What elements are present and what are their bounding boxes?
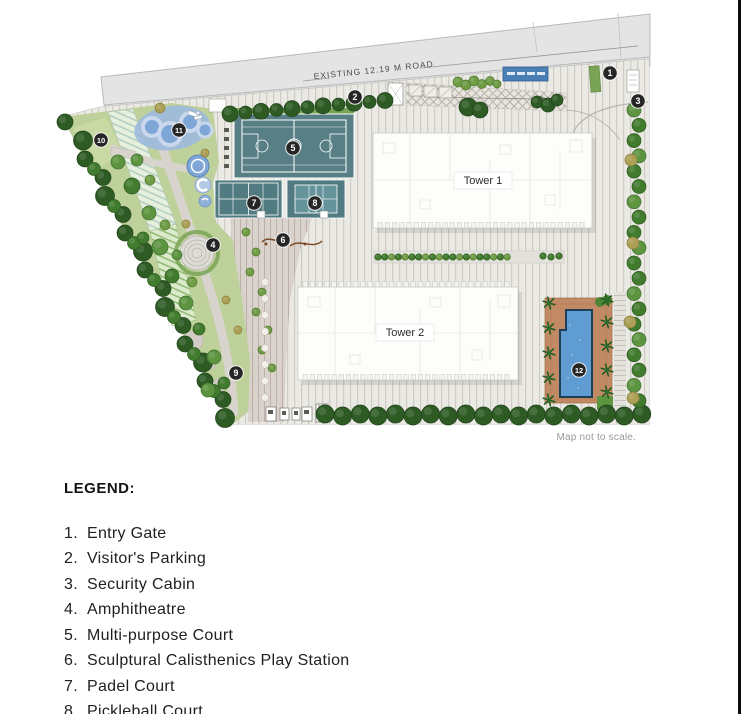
tree bbox=[490, 254, 496, 260]
balcony-tick bbox=[317, 375, 322, 381]
tree bbox=[627, 287, 641, 301]
tree bbox=[386, 405, 404, 423]
brochure-page: EXISTING 12.19 M ROAD bbox=[0, 0, 741, 714]
tree bbox=[632, 180, 646, 194]
map-marker-1: 1 bbox=[603, 66, 618, 81]
tree bbox=[627, 392, 639, 404]
tree bbox=[111, 155, 125, 169]
tree bbox=[222, 106, 238, 122]
tree bbox=[334, 407, 352, 425]
svg-text:10: 10 bbox=[97, 136, 105, 145]
site-plan-map: EXISTING 12.19 M ROAD bbox=[0, 0, 741, 456]
balcony-tick bbox=[303, 282, 308, 288]
legend-item-number: 3. bbox=[64, 576, 87, 601]
balcony-tick bbox=[454, 282, 459, 288]
tree bbox=[632, 210, 646, 224]
hex-paver bbox=[262, 394, 269, 402]
map-marker-2: 2 bbox=[348, 90, 363, 105]
tree bbox=[234, 326, 242, 334]
svg-text:7: 7 bbox=[252, 198, 257, 208]
tree bbox=[179, 296, 193, 310]
tree bbox=[615, 407, 633, 425]
hex-paver bbox=[262, 311, 269, 319]
balcony-tick bbox=[515, 223, 520, 229]
balcony-tick bbox=[436, 223, 441, 229]
legend-item: 6.Sculptural Calisthenics Play Station bbox=[64, 652, 684, 677]
tree bbox=[404, 407, 422, 425]
bench bbox=[224, 137, 229, 141]
balcony-tick bbox=[461, 282, 466, 288]
balcony-tick bbox=[397, 375, 402, 381]
tree bbox=[627, 195, 641, 209]
legend-item: 5.Multi-purpose Court bbox=[64, 627, 684, 652]
tree bbox=[188, 348, 201, 361]
bench bbox=[224, 155, 229, 159]
tree bbox=[148, 274, 161, 287]
balcony-tick bbox=[404, 375, 409, 381]
balcony-tick bbox=[339, 375, 344, 381]
balcony-tick bbox=[522, 223, 527, 229]
tree bbox=[548, 254, 554, 260]
legend-item: 7.Padel Court bbox=[64, 678, 684, 703]
tree bbox=[316, 405, 334, 423]
tree bbox=[242, 228, 250, 236]
map-marker-10: 10 bbox=[94, 133, 109, 148]
legend-item-label: Pickleball Court bbox=[87, 703, 203, 714]
svg-text:2: 2 bbox=[353, 92, 358, 102]
tower-2-label: Tower 2 bbox=[386, 327, 425, 339]
tree bbox=[456, 254, 462, 260]
balcony-tick bbox=[411, 375, 416, 381]
court-gate bbox=[320, 211, 328, 218]
balcony-tick bbox=[368, 282, 373, 288]
tree bbox=[474, 407, 492, 425]
balcony-tick bbox=[375, 282, 380, 288]
legend-item: 1.Entry Gate bbox=[64, 525, 684, 550]
map-marker-8: 8 bbox=[308, 196, 323, 211]
tree bbox=[252, 248, 260, 256]
balcony-tick bbox=[476, 375, 481, 381]
tree bbox=[402, 254, 408, 260]
map-disclaimer: Map not to scale. bbox=[556, 432, 636, 443]
balcony-tick bbox=[469, 282, 474, 288]
tree bbox=[470, 254, 476, 260]
tree bbox=[429, 254, 435, 260]
balcony-tick bbox=[353, 282, 358, 288]
tree bbox=[627, 237, 639, 249]
legend-list: 1.Entry Gate2.Visitor's Parking3.Securit… bbox=[64, 525, 684, 714]
balcony-tick bbox=[418, 375, 423, 381]
tree bbox=[627, 164, 641, 178]
balcony-tick bbox=[497, 282, 502, 288]
balcony-tick bbox=[479, 223, 484, 229]
legend-item-number: 7. bbox=[64, 678, 87, 703]
balcony-tick bbox=[353, 375, 358, 381]
tree bbox=[182, 220, 190, 228]
balcony-tick bbox=[472, 223, 477, 229]
tower-2: Tower 2 bbox=[298, 287, 522, 385]
legend-item: 2.Visitor's Parking bbox=[64, 550, 684, 575]
tree bbox=[193, 323, 205, 335]
balcony-tick bbox=[440, 282, 445, 288]
balcony-tick bbox=[346, 375, 351, 381]
balcony-tick bbox=[508, 223, 512, 229]
balcony-tick bbox=[490, 282, 495, 288]
tree bbox=[168, 311, 181, 324]
balcony-tick bbox=[580, 223, 585, 229]
tree bbox=[57, 114, 73, 130]
tree bbox=[632, 271, 646, 285]
canopy-panel bbox=[527, 72, 535, 75]
tree bbox=[74, 131, 93, 150]
balcony-tick bbox=[397, 282, 402, 288]
tree bbox=[239, 106, 252, 119]
tree bbox=[395, 254, 401, 260]
tree bbox=[477, 254, 483, 260]
tree bbox=[369, 407, 387, 425]
balcony-tick bbox=[389, 375, 394, 381]
svg-text:4: 4 bbox=[211, 240, 216, 250]
balcony-tick bbox=[551, 223, 556, 229]
tree bbox=[527, 405, 545, 423]
map-marker-11: 11 bbox=[172, 123, 187, 138]
tree bbox=[252, 308, 260, 316]
balcony-tick bbox=[529, 223, 534, 229]
svg-text:11: 11 bbox=[175, 126, 183, 135]
tree bbox=[627, 348, 641, 362]
balcony-tick bbox=[505, 282, 510, 288]
balcony-tick bbox=[375, 375, 380, 381]
balcony-tick bbox=[565, 223, 570, 229]
green-parking-strip bbox=[589, 66, 601, 93]
balcony-tick bbox=[425, 282, 430, 288]
legend-item: 8.Pickleball Court bbox=[64, 703, 684, 714]
balcony-tick bbox=[443, 223, 448, 229]
tree bbox=[218, 377, 230, 389]
balcony-tick bbox=[382, 375, 387, 381]
balcony-tick bbox=[339, 282, 344, 288]
balcony-tick bbox=[457, 223, 462, 229]
tree bbox=[284, 101, 300, 117]
tree bbox=[375, 254, 381, 260]
balcony-tick bbox=[332, 375, 337, 381]
tree bbox=[598, 405, 616, 423]
tree bbox=[627, 256, 641, 270]
balcony-tick bbox=[303, 375, 308, 381]
parking-stalls bbox=[409, 85, 452, 98]
balcony-tick bbox=[483, 282, 488, 288]
balcony-tick bbox=[385, 223, 390, 229]
balcony-tick bbox=[433, 282, 438, 288]
tree bbox=[124, 178, 140, 194]
legend-item-label: Security Cabin bbox=[87, 576, 195, 601]
balcony-tick bbox=[447, 375, 452, 381]
tree bbox=[301, 101, 314, 114]
legend-item-number: 5. bbox=[64, 627, 87, 652]
court-gate bbox=[257, 211, 265, 218]
legend-item-number: 8. bbox=[64, 703, 87, 714]
balcony-tick bbox=[310, 375, 315, 381]
tree bbox=[187, 277, 197, 287]
bench bbox=[224, 164, 229, 168]
tree bbox=[152, 239, 168, 255]
tree bbox=[436, 254, 442, 260]
tree bbox=[632, 302, 646, 316]
tree bbox=[443, 254, 449, 260]
balcony-tick bbox=[433, 375, 438, 381]
tree bbox=[416, 254, 422, 260]
tree bbox=[145, 175, 155, 185]
svg-text:9: 9 bbox=[234, 368, 239, 378]
tree bbox=[625, 154, 637, 166]
tree bbox=[172, 250, 182, 260]
balcony-tick bbox=[544, 223, 549, 229]
balcony-tick bbox=[392, 223, 397, 229]
tree bbox=[580, 407, 598, 425]
legend-item-number: 4. bbox=[64, 601, 87, 626]
balcony-tick bbox=[325, 375, 330, 381]
map-marker-7: 7 bbox=[247, 196, 262, 211]
hex-paver bbox=[262, 344, 269, 352]
tree bbox=[207, 350, 221, 364]
hex-paver bbox=[262, 361, 269, 369]
map-marker-12: 12 bbox=[572, 363, 587, 378]
balcony-tick bbox=[483, 375, 488, 381]
bench bbox=[224, 146, 229, 150]
tree bbox=[478, 80, 487, 89]
tree bbox=[551, 94, 563, 106]
tree bbox=[472, 102, 488, 118]
balcony-tick bbox=[454, 375, 459, 381]
balcony-tick bbox=[414, 223, 419, 229]
balcony-tick bbox=[461, 375, 466, 381]
balcony-tick bbox=[447, 282, 452, 288]
tree bbox=[108, 200, 121, 213]
legend-item: 4.Amphitheatre bbox=[64, 601, 684, 626]
balcony-tick bbox=[378, 223, 383, 229]
legend-item-number: 6. bbox=[64, 652, 87, 677]
legend-item-label: Multi-purpose Court bbox=[87, 627, 233, 652]
balcony-tick bbox=[325, 282, 330, 288]
site-plan-svg: EXISTING 12.19 M ROAD bbox=[0, 0, 741, 456]
tree bbox=[450, 254, 456, 260]
balcony-tick bbox=[536, 223, 541, 229]
balcony-tick bbox=[332, 282, 337, 288]
tree bbox=[627, 134, 641, 148]
tree bbox=[382, 254, 388, 260]
canopy-panel bbox=[537, 72, 545, 75]
canopy-panel bbox=[517, 72, 525, 75]
legend-item-label: Visitor's Parking bbox=[87, 550, 206, 575]
hex-paver bbox=[262, 328, 269, 336]
tree bbox=[201, 149, 209, 157]
tree bbox=[363, 95, 376, 108]
tree bbox=[142, 206, 156, 220]
tree bbox=[165, 269, 179, 283]
balcony-tick bbox=[497, 375, 502, 381]
svg-text:12: 12 bbox=[575, 366, 583, 375]
balcony-tick bbox=[404, 282, 409, 288]
balcony-tick bbox=[490, 375, 495, 381]
balcony-tick bbox=[464, 223, 469, 229]
tree bbox=[270, 103, 283, 116]
svg-text:8: 8 bbox=[313, 198, 318, 208]
balcony-tick bbox=[505, 375, 510, 381]
tree bbox=[632, 363, 646, 377]
tree bbox=[422, 254, 428, 260]
tree bbox=[439, 407, 457, 425]
side-path bbox=[614, 292, 626, 410]
balcony-tick bbox=[382, 282, 387, 288]
tree bbox=[504, 254, 510, 260]
map-marker-3: 3 bbox=[631, 94, 646, 109]
tree bbox=[632, 333, 646, 347]
security-sign-box bbox=[627, 70, 639, 92]
svg-text:6: 6 bbox=[281, 235, 286, 245]
balcony-tick bbox=[428, 223, 433, 229]
legend-item-number: 2. bbox=[64, 550, 87, 575]
legend-item-label: Entry Gate bbox=[87, 525, 166, 550]
svg-text:1: 1 bbox=[608, 68, 613, 78]
tree bbox=[422, 405, 440, 423]
svg-text:5: 5 bbox=[291, 143, 296, 153]
tree bbox=[633, 405, 651, 423]
legend-title: LEGEND: bbox=[64, 481, 684, 497]
tree bbox=[332, 98, 345, 111]
balcony-tick bbox=[500, 223, 505, 229]
balcony-tick bbox=[361, 375, 366, 381]
tree bbox=[457, 405, 475, 423]
tree bbox=[556, 253, 562, 259]
balcony-tick bbox=[310, 282, 315, 288]
legend-item-label: Sculptural Calisthenics Play Station bbox=[87, 652, 349, 677]
hex-paver bbox=[262, 278, 269, 286]
hex-paver bbox=[262, 295, 269, 303]
legend-item: 3.Security Cabin bbox=[64, 576, 684, 601]
tree bbox=[351, 405, 369, 423]
balcony-tick bbox=[572, 223, 577, 229]
balcony-tick bbox=[486, 223, 491, 229]
balcony-tick bbox=[411, 282, 416, 288]
tree bbox=[624, 316, 636, 328]
balcony-tick bbox=[418, 282, 423, 288]
tree bbox=[201, 383, 215, 397]
tower-1-label: Tower 1 bbox=[464, 175, 503, 187]
tree bbox=[253, 103, 269, 119]
bench bbox=[224, 128, 229, 132]
legend-item-number: 1. bbox=[64, 525, 87, 550]
map-marker-6: 6 bbox=[276, 233, 291, 248]
tree bbox=[510, 407, 528, 425]
balcony-tick bbox=[361, 282, 366, 288]
tree bbox=[627, 378, 641, 392]
balcony-tick bbox=[389, 282, 394, 288]
tree bbox=[540, 253, 546, 259]
tree bbox=[160, 220, 170, 230]
tree bbox=[463, 254, 469, 260]
balcony-tick bbox=[493, 223, 498, 229]
legend-item-label: Padel Court bbox=[87, 678, 175, 703]
balcony-tick bbox=[469, 375, 474, 381]
tree bbox=[545, 407, 563, 425]
tree bbox=[632, 118, 646, 132]
balcony-tick bbox=[425, 375, 430, 381]
canopy-panel bbox=[507, 72, 515, 75]
tree bbox=[409, 254, 415, 260]
balcony-tick bbox=[476, 282, 481, 288]
balcony-tick bbox=[368, 375, 373, 381]
tower-1: Tower 1 bbox=[373, 133, 596, 233]
tree bbox=[493, 80, 501, 88]
tree bbox=[131, 154, 143, 166]
balcony-tick bbox=[450, 223, 455, 229]
legend-section: LEGEND: 1.Entry Gate2.Visitor's Parking3… bbox=[64, 481, 684, 714]
tree bbox=[246, 268, 254, 276]
tree bbox=[222, 296, 230, 304]
tree bbox=[388, 254, 394, 260]
tree bbox=[155, 103, 165, 113]
tree bbox=[492, 405, 510, 423]
balcony-tick bbox=[317, 282, 322, 288]
map-marker-9: 9 bbox=[229, 366, 244, 381]
balcony-tick bbox=[558, 223, 563, 229]
legend-item-label: Amphitheatre bbox=[87, 601, 186, 626]
balcony-tick bbox=[346, 282, 351, 288]
tree bbox=[88, 163, 101, 176]
tree bbox=[315, 98, 331, 114]
tree bbox=[268, 364, 276, 372]
map-marker-4: 4 bbox=[206, 238, 221, 253]
tree bbox=[137, 232, 149, 244]
balcony-tick bbox=[421, 223, 426, 229]
tree bbox=[484, 254, 490, 260]
map-marker-5: 5 bbox=[286, 141, 301, 156]
tree bbox=[377, 93, 393, 109]
svg-text:3: 3 bbox=[636, 96, 641, 106]
tree bbox=[497, 254, 503, 260]
balcony-tick bbox=[407, 223, 412, 229]
tree bbox=[562, 405, 580, 423]
balcony-tick bbox=[440, 375, 445, 381]
balcony-tick bbox=[400, 223, 405, 229]
hex-paver bbox=[262, 377, 269, 385]
tree bbox=[216, 409, 235, 428]
